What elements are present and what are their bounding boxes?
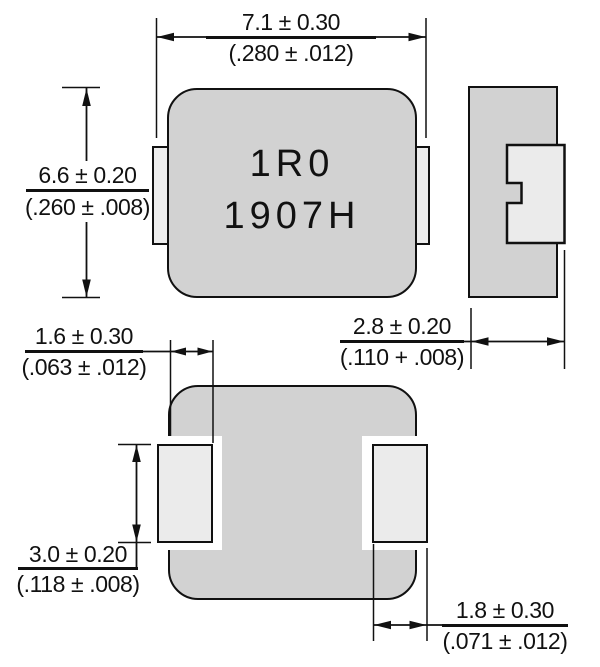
dim-pad-height-arrowheads — [132, 445, 141, 542]
dim-height-inch: (.260 ± .008) — [25, 192, 150, 222]
dim-width-label: 7.1 ± 0.30 (.280 ± .012) — [206, 9, 376, 67]
dimension-drawing: 1R0 1907H — [0, 0, 600, 667]
dim-width-inch: (.280 ± .012) — [228, 39, 353, 67]
dim-pad-top-length-mm: 1.6 ± 0.30 — [35, 323, 133, 350]
marking-lot-code: 1907H — [167, 190, 417, 242]
dim-pad-height-label: 3.0 ± 0.20 (.118 ± .008) — [18, 541, 138, 598]
dim-pad-width-inch: (.071 ± .012) — [442, 627, 567, 655]
side-view-body — [468, 86, 558, 298]
component-marking: 1R0 1907H — [167, 138, 417, 242]
dim-pad-top-length-label: 1.6 ± 0.30 (.063 ± .012) — [25, 323, 143, 381]
dim-pad-width-label: 1.8 ± 0.30 (.071 ± .012) — [442, 597, 568, 655]
dim-thickness-label: 2.8 ± 0.20 (.110 + .008) — [340, 313, 464, 371]
dim-pad-height-inch: (.118 ± .008) — [16, 570, 139, 598]
bottom-view-left-pad — [157, 444, 213, 543]
dim-pad-height-mm: 3.0 ± 0.20 — [29, 541, 127, 567]
dim-thickness-arrowheads — [472, 337, 565, 346]
dim-thickness-mm: 2.8 ± 0.20 — [353, 313, 451, 340]
dim-height-label: 6.6 ± 0.20 (.260 ± .008) — [26, 161, 149, 222]
dim-width-mm: 7.1 ± 0.30 — [242, 9, 340, 36]
marking-inductance-code: 1R0 — [167, 138, 417, 190]
dim-pad-top-length-inch: (.063 ± .012) — [21, 353, 146, 381]
dim-pad-width-arrowheads — [374, 621, 427, 630]
dim-pad-top-length-arrowheads — [171, 348, 213, 356]
dim-height-mm: 6.6 ± 0.20 — [38, 161, 136, 189]
dim-thickness-inch: (.110 + .008) — [340, 343, 464, 371]
bottom-view-right-pad — [372, 444, 428, 543]
dim-pad-width-mm: 1.8 ± 0.30 — [456, 597, 554, 624]
